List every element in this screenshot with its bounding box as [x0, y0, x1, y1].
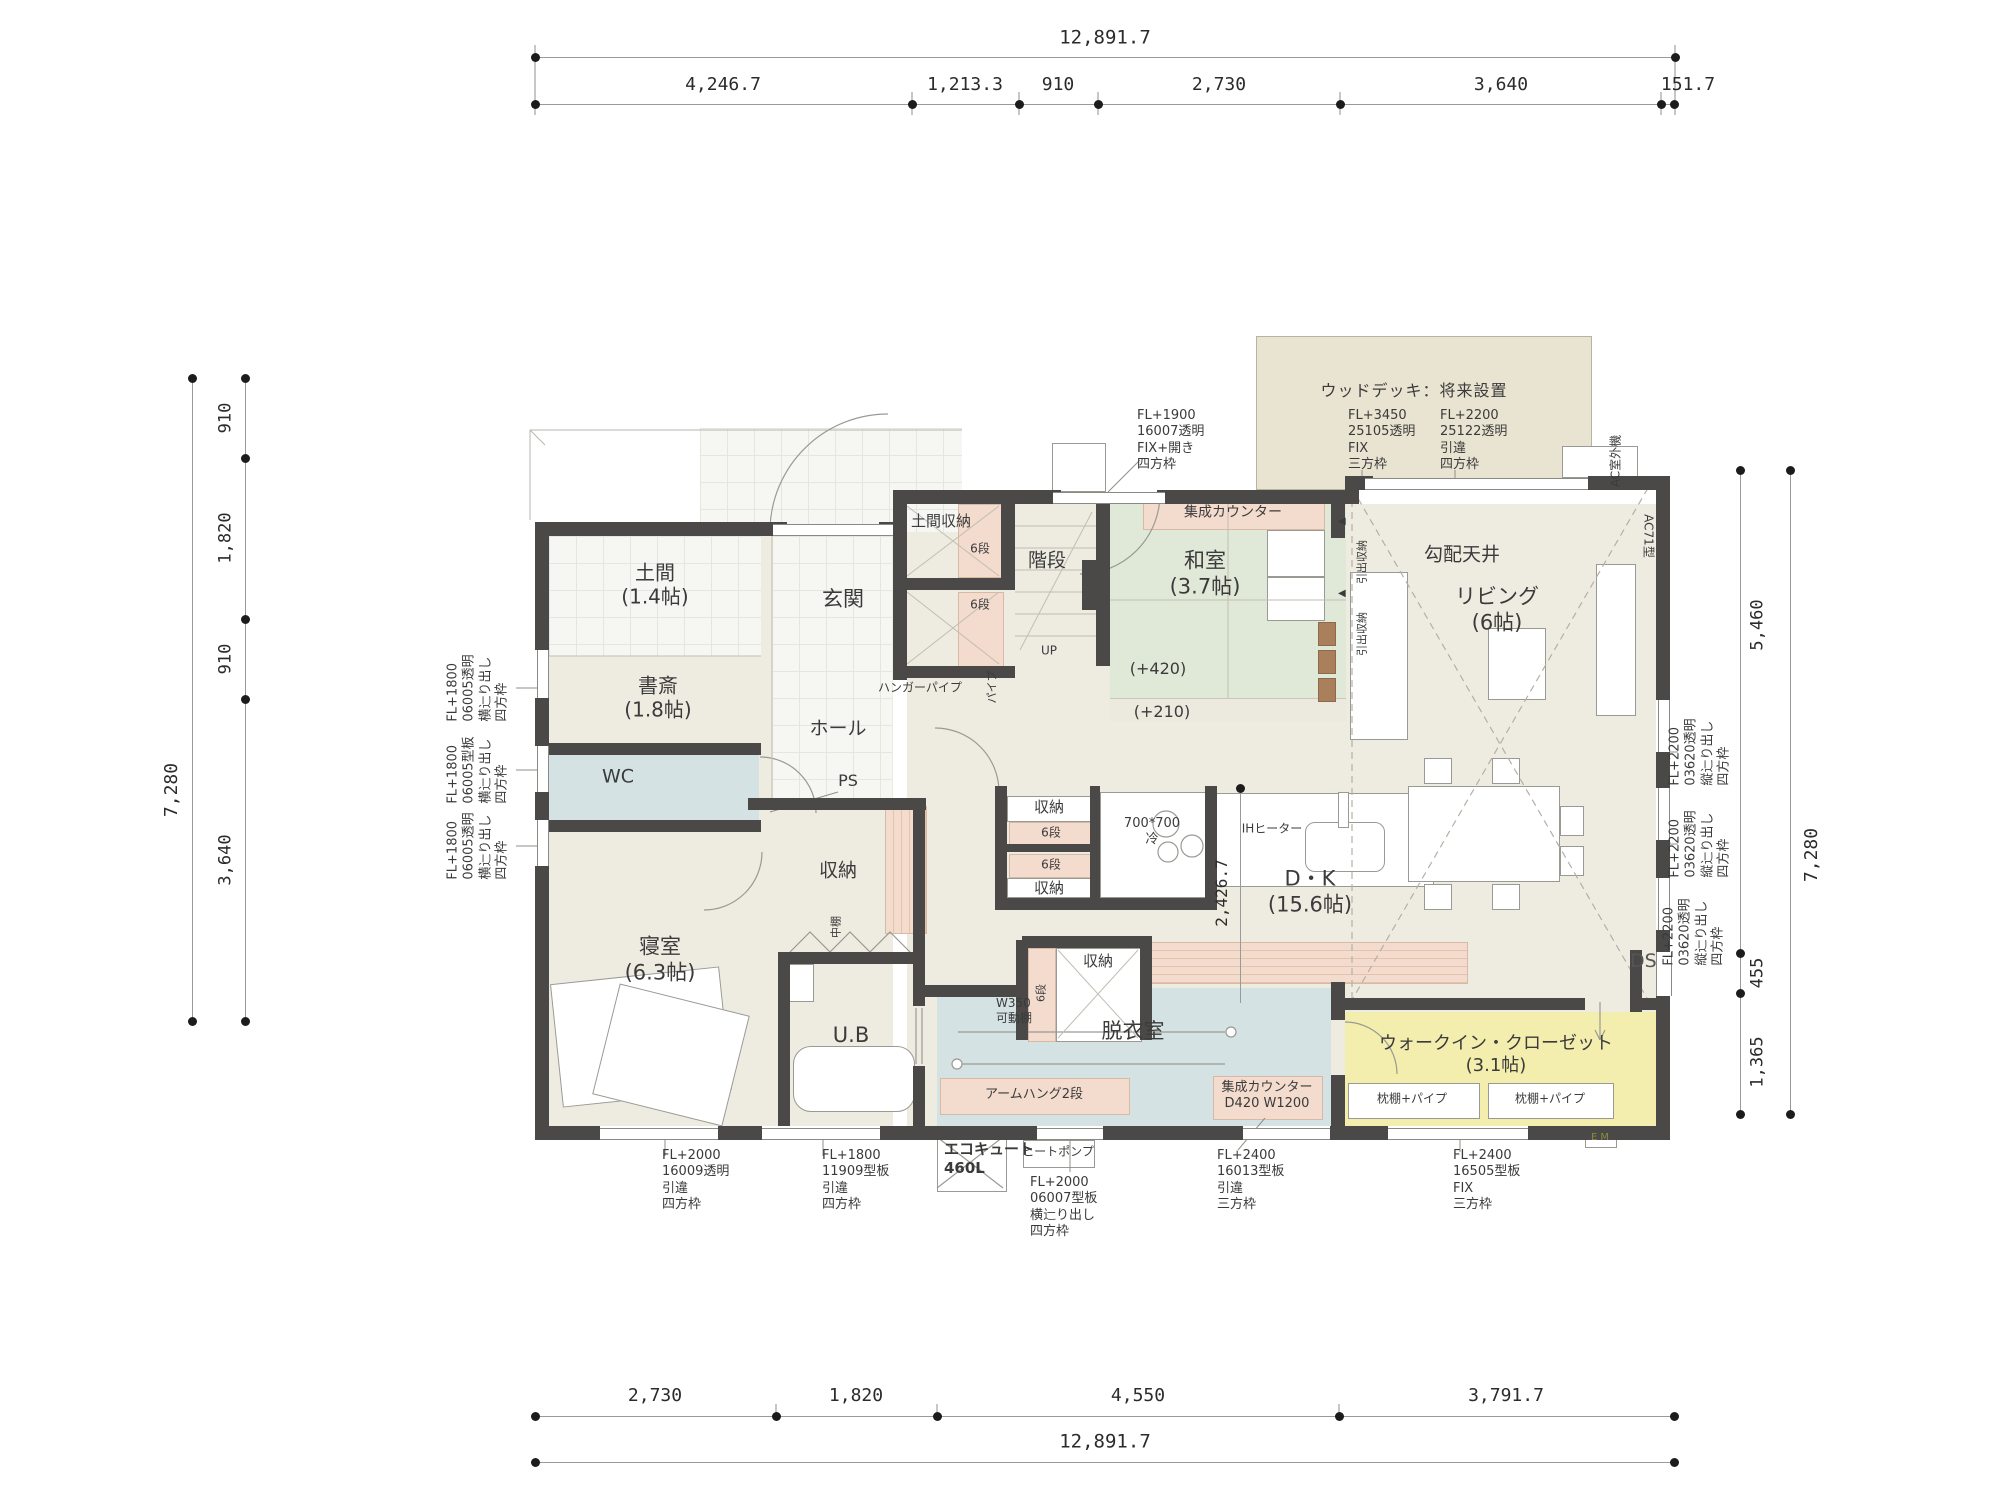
window [537, 746, 549, 792]
wall [1345, 476, 1359, 504]
dimension-dot [1736, 466, 1745, 475]
window [600, 1128, 718, 1140]
dimension-line [535, 104, 1675, 105]
wall [535, 522, 787, 536]
label-hikidashi: 引出収納 [1355, 540, 1368, 584]
annotation-window-bottom: FL+200006007型板横辷り出し四方枠 [1030, 1175, 1097, 1240]
dimension-dot [1015, 100, 1024, 109]
dimension-dot [1736, 949, 1745, 958]
dimension-line [535, 1416, 1674, 1417]
window [1243, 1128, 1330, 1140]
label-level-420: (+420) [1130, 659, 1186, 679]
dimension-dot [1657, 100, 1666, 109]
dim-top-seg: 1,213.3 [927, 74, 1003, 96]
label-hanger-pipe: ハンガーパイプ [878, 681, 962, 696]
wall [535, 792, 549, 820]
wall [1022, 936, 1152, 948]
annotation-deck-fix: FL+345025105透明FIX三方枠 [1348, 408, 1415, 473]
label-ps: PS [838, 771, 858, 791]
dimension-dot [1786, 466, 1795, 475]
triangle-marker-icon: ◀ [1338, 588, 1346, 600]
label-makuradana: 枕棚+パイプ [1515, 1092, 1585, 1107]
dim-bottom-seg: 1,820 [829, 1385, 883, 1407]
dimension-dot [241, 695, 250, 704]
window [1388, 1128, 1528, 1140]
dimension-dot [1670, 1412, 1679, 1421]
dimension-dot [1336, 100, 1345, 109]
label-level-210: (+210) [1134, 702, 1190, 722]
dim-right-total: 7,280 [1801, 828, 1823, 882]
label-pipe: パイプ [985, 671, 998, 704]
dim-bottom-total: 12,891.7 [1059, 1430, 1151, 1453]
label-6dan: 6段 [970, 598, 990, 613]
room-label-doma-storage: 土間収納 [911, 512, 971, 530]
dimension-dot [188, 1017, 197, 1026]
dimension-dot [1671, 53, 1680, 62]
wall [535, 1126, 600, 1140]
wall [880, 1126, 1037, 1140]
room-label-wic: ウォークイン・クローゼット(3.1帖) [1379, 1033, 1613, 1077]
annotation-window-left: FL+180006005透明横辷り出し四方枠 [446, 654, 511, 721]
dim-right-seg: 1,365 [1748, 1036, 1769, 1087]
step-box [1318, 622, 1336, 646]
window [773, 524, 893, 536]
room-label-shosai: 書斎(1.8帖) [624, 674, 691, 723]
dimension-dot [1736, 1110, 1745, 1119]
dim-bottom-seg: 2,730 [628, 1385, 682, 1407]
floor-plan: 12,891.7 4,246.7 1,213.3 910 2,730 3,640… [0, 0, 1999, 1500]
dimension-dot [933, 1412, 942, 1421]
label-6dan: 6段 [1041, 858, 1061, 873]
dim-right-seg: 5,460 [1748, 599, 1769, 650]
label-armhang: アームハング2段 [985, 1087, 1083, 1103]
dimension-dot [772, 1412, 781, 1421]
dimension-dot [531, 1458, 540, 1467]
dim-left-seg: 1,820 [216, 512, 237, 563]
annotation-window-bottom: FL+240016505型板FIX三方枠 [1453, 1148, 1520, 1213]
label-6dan: 6段 [1041, 826, 1061, 841]
wall [1096, 504, 1110, 666]
window [1053, 492, 1165, 504]
label-ih-heater: IHヒーター [1242, 822, 1303, 837]
label-wood-deck: ウッドデッキ：将来設置 [1320, 381, 1507, 401]
label-up: UP [1041, 644, 1057, 659]
room-label-ub: U.B [833, 1023, 869, 1049]
wall [913, 1066, 925, 1126]
wall [1001, 504, 1015, 580]
dimension-dot [1670, 100, 1679, 109]
wall [893, 578, 1015, 590]
dimension-dot [241, 374, 250, 383]
room-label-living: リビング(6帖) [1455, 584, 1539, 635]
wall [535, 698, 549, 746]
wall [778, 952, 925, 964]
wall [1157, 490, 1353, 504]
dimension-dot [1736, 989, 1745, 998]
annotation-deck-slide: FL+220025122透明引違四方枠 [1440, 408, 1507, 473]
label-counter-datsui: 集成カウンターD420 W1200 [1221, 1080, 1312, 1112]
label-closet-datsui: 収納 [1083, 952, 1113, 970]
annotation-window-right: FL+220003620透明縦辷り出し四方枠 [1668, 718, 1733, 785]
dimension-dot [241, 1017, 250, 1026]
dimension-dot [1335, 1412, 1344, 1421]
annotation-window-left: FL+180006005型板横辷り出し四方枠 [446, 736, 511, 803]
annotation-window-right: FL+220003620透明縦辷り出し四方枠 [1662, 898, 1727, 965]
annotation-window-bottom: FL+180011909型板引違四方枠 [822, 1148, 889, 1213]
wall [1656, 476, 1670, 700]
annotation-window-bottom: FL+240016013型板引違三方枠 [1217, 1148, 1284, 1213]
dim-interior: 2,426.7 [1212, 859, 1232, 926]
dimension-dot [1094, 100, 1103, 109]
wall [913, 798, 925, 964]
dimension-dot [1236, 784, 1245, 793]
window [1037, 1128, 1103, 1140]
window [537, 820, 549, 866]
wall [1103, 1126, 1243, 1140]
dimension-line [535, 1462, 1674, 1463]
step-box [1318, 678, 1336, 702]
room-label-dk: D・K(15.6帖) [1268, 866, 1352, 917]
dim-top-seg: 3,640 [1474, 74, 1528, 96]
step-box [1318, 650, 1336, 674]
dimension-line [1240, 788, 1241, 1003]
wall [718, 1126, 762, 1140]
label-em: E M [1591, 1132, 1609, 1144]
label-ac-outdoor: AC室外機 [1609, 435, 1624, 487]
wall [549, 820, 761, 832]
room-label-washitsu: 和室(3.7帖) [1170, 548, 1241, 599]
window [537, 650, 549, 698]
room-label-stairs: 階段 [1028, 549, 1066, 572]
room-label-wc: WC [602, 765, 634, 788]
wall [995, 898, 1217, 910]
dim-bottom-seg: 3,791.7 [1468, 1385, 1544, 1407]
label-ds: DS [1630, 950, 1657, 973]
dim-left-seg: 910 [216, 644, 237, 675]
annotation-fix-open: FL+190016007透明FIX+開き四方枠 [1137, 408, 1204, 473]
annotation-window-bottom: FL+200016009透明引違四方枠 [662, 1148, 729, 1213]
dimension-dot [1786, 1110, 1795, 1119]
label-pantry-top: 収納 [1034, 798, 1064, 816]
label-pantry-bottom: 収納 [1034, 879, 1064, 897]
label-makuradana: 枕棚+パイプ [1377, 1092, 1447, 1107]
dim-top-seg: 2,730 [1192, 74, 1246, 96]
wall [1331, 1075, 1345, 1126]
annotation-window-left: FL+180006005透明横辷り出し四方枠 [446, 812, 511, 879]
room-label-bedroom: 寝室(6.3帖) [625, 934, 696, 985]
dim-top-seg: 151.7 [1661, 74, 1715, 96]
wall [1656, 996, 1670, 1140]
dimension-line [1790, 470, 1791, 1114]
dimension-line [1740, 470, 1741, 1114]
room-label-datsui: 脱衣室 [1102, 1019, 1165, 1045]
room-label-hall: ホール [809, 717, 866, 740]
annotation-window-right: FL+220003620透明縦辷り出し四方枠 [1668, 810, 1733, 877]
dimension-line [535, 57, 1675, 58]
label-nakadana: 中棚 [829, 916, 842, 938]
label-counter-washitsu: 集成カウンター [1184, 504, 1282, 521]
dim-left-seg: 3,640 [216, 834, 237, 885]
dimension-dot [188, 374, 197, 383]
label-ac71: AC71型 [1641, 514, 1656, 558]
wall [913, 964, 925, 1006]
label-ecocute: エコキュート460L [944, 1140, 1034, 1178]
dimension-line [192, 378, 193, 1021]
triangle-marker-icon: ◀ [1338, 516, 1346, 528]
wall [1345, 998, 1585, 1010]
dimension-dot [531, 1412, 540, 1421]
dimension-dot [1670, 1458, 1679, 1467]
wall [1640, 998, 1656, 1010]
wall [1082, 560, 1096, 610]
dim-top-seg: 910 [1042, 74, 1075, 96]
label-6dan: 6段 [1034, 984, 1047, 1002]
dim-left-total: 7,280 [161, 763, 183, 817]
wall [1330, 1126, 1388, 1140]
dim-left-seg: 910 [216, 403, 237, 434]
dimension-dot [241, 615, 250, 624]
dim-right-seg: 455 [1748, 958, 1769, 989]
dimension-dot [908, 100, 917, 109]
dim-bottom-seg: 4,550 [1111, 1385, 1165, 1407]
room-label-genkan: 玄関 [822, 587, 864, 613]
label-heatpump: ヒートポンプ [1022, 1145, 1094, 1160]
dimension-dot [531, 53, 540, 62]
label-w350-shelf: W350可動棚 [996, 996, 1032, 1026]
dim-top-total: 12,891.7 [1059, 26, 1151, 49]
wall [893, 490, 1061, 504]
wall [1001, 844, 1092, 852]
label-closet-hall: 収納 [819, 859, 857, 882]
dimension-dot [241, 454, 250, 463]
wall [1331, 982, 1345, 1020]
dim-top-seg: 4,246.7 [685, 74, 761, 96]
label-fridge: 700*700冷 [1124, 816, 1180, 848]
label-6dan: 6段 [970, 542, 990, 557]
wall [748, 798, 926, 810]
wall [778, 952, 790, 1126]
wall [549, 743, 761, 755]
dimension-dot [531, 100, 540, 109]
room-label-doma: 土間(1.4帖) [621, 561, 688, 610]
wall [535, 522, 549, 650]
window [1365, 478, 1588, 490]
label-hikidashi: 引出収納 [1355, 612, 1368, 656]
label-sloped-ceiling: 勾配天井 [1424, 543, 1500, 566]
wall [535, 866, 549, 1140]
window [762, 1128, 880, 1140]
